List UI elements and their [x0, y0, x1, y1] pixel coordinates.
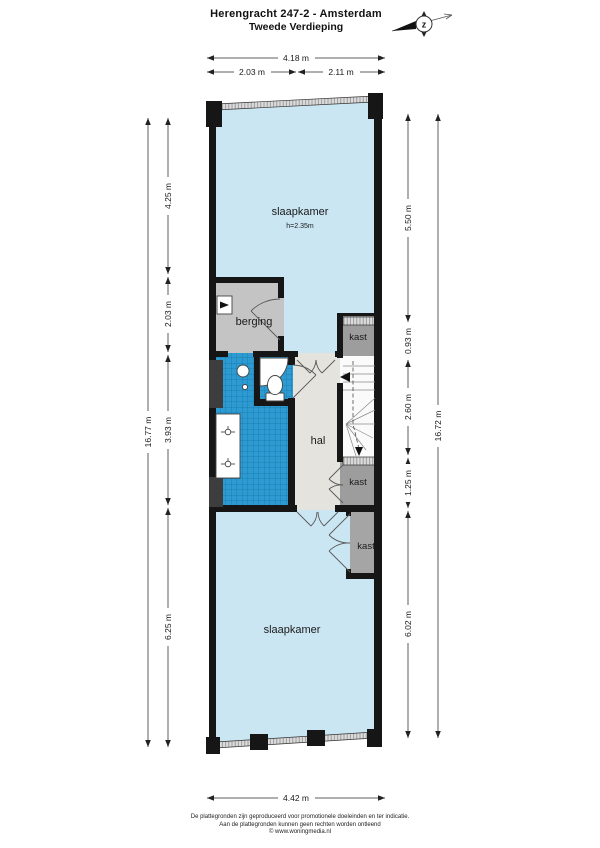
- compass-letter: z: [422, 20, 427, 30]
- toilet-bowl-icon: [268, 376, 283, 395]
- pillar-top-left: [206, 101, 222, 127]
- compass-icon: z: [392, 11, 452, 37]
- floorplan-page: Herengracht 247-2 - Amsterdam Tweede Ver…: [0, 0, 600, 848]
- label-slaapkamer-top: slaapkamer: [272, 206, 329, 218]
- shower-head-icon: [237, 365, 249, 377]
- sink-counter: [216, 414, 240, 478]
- dim-top-left: 2.03 m: [239, 67, 265, 77]
- dim-top-total: 4.18 m: [283, 53, 309, 63]
- wall-bedroom2-top-b: [335, 505, 382, 512]
- shower-drain-icon: [243, 385, 248, 390]
- dim-right-seg2: 0.93 m: [403, 328, 413, 354]
- wall-left: [209, 102, 216, 752]
- wall-stair-left: [337, 383, 343, 462]
- dim-bottom-total: 4.42 m: [283, 793, 309, 803]
- glass-band-kast-mid: [343, 457, 375, 465]
- chimney-top: [209, 360, 223, 408]
- wall-wc-left: [254, 356, 260, 403]
- pillar-top-right: [368, 93, 383, 119]
- dim-left-total: 16.77 m: [143, 417, 153, 448]
- dim-right-seg1: 5.50 m: [403, 205, 413, 231]
- wall-kast-bottom-post-b: [346, 569, 351, 574]
- footer-disclaimer-line1: De plattegronden zijn geproduceerd voor …: [0, 814, 600, 822]
- wall-kast-bottom-base: [346, 573, 382, 579]
- stairs-floor: [340, 356, 375, 460]
- dim-left-seg3: 3.93 m: [163, 417, 173, 443]
- dim-left-seg4: 6.25 m: [163, 614, 173, 640]
- chimney-bottom: [209, 477, 223, 507]
- wall-bath-top-a: [209, 351, 228, 357]
- mullion-bottom-2: [307, 730, 325, 746]
- label-hal: hal: [311, 435, 326, 447]
- glass-band-kast-top: [343, 317, 375, 325]
- dim-right-seg5: 6.02 m: [403, 611, 413, 637]
- wall-kast-top-cap: [337, 313, 382, 316]
- pillar-bottom-right: [367, 729, 382, 747]
- pillar-bottom-left: [206, 737, 220, 754]
- dim-right-total: 16.72 m: [433, 411, 443, 442]
- wall-berging-top: [209, 277, 284, 283]
- dim-left-seg2: 2.03 m: [163, 301, 173, 327]
- footer-disclaimer-line2: Aan de plattegronden kunnen geen rechten…: [0, 822, 600, 830]
- mullion-bottom-1: [250, 734, 268, 750]
- label-slaapkamer-bottom: slaapkamer: [264, 624, 321, 636]
- footer-copyright: © www.woningmedia.nl: [0, 829, 600, 837]
- dim-right-seg3: 2.60 m: [403, 394, 413, 420]
- label-berging: berging: [236, 316, 273, 328]
- wall-hal-top-post-l: [288, 351, 297, 357]
- label-slaapkamer-top-height: h=2.35m: [286, 223, 314, 230]
- label-kast-top: kast: [349, 332, 367, 343]
- dim-left-seg1: 4.25 m: [163, 183, 173, 209]
- dim-top-right: 2.11 m: [328, 67, 353, 77]
- wall-kast-top-left: [337, 314, 343, 358]
- dim-right-seg4: 1.25 m: [403, 470, 413, 496]
- wall-hal-left-b: [288, 398, 295, 512]
- label-kast-mid: kast: [349, 477, 367, 488]
- wall-right: [374, 95, 382, 741]
- label-kast-bottom: kast: [357, 541, 375, 552]
- wall-berging-right-a: [278, 277, 284, 298]
- floorplan-drawing: slaapkamer h=2.35m berging kast hal kast…: [0, 0, 600, 848]
